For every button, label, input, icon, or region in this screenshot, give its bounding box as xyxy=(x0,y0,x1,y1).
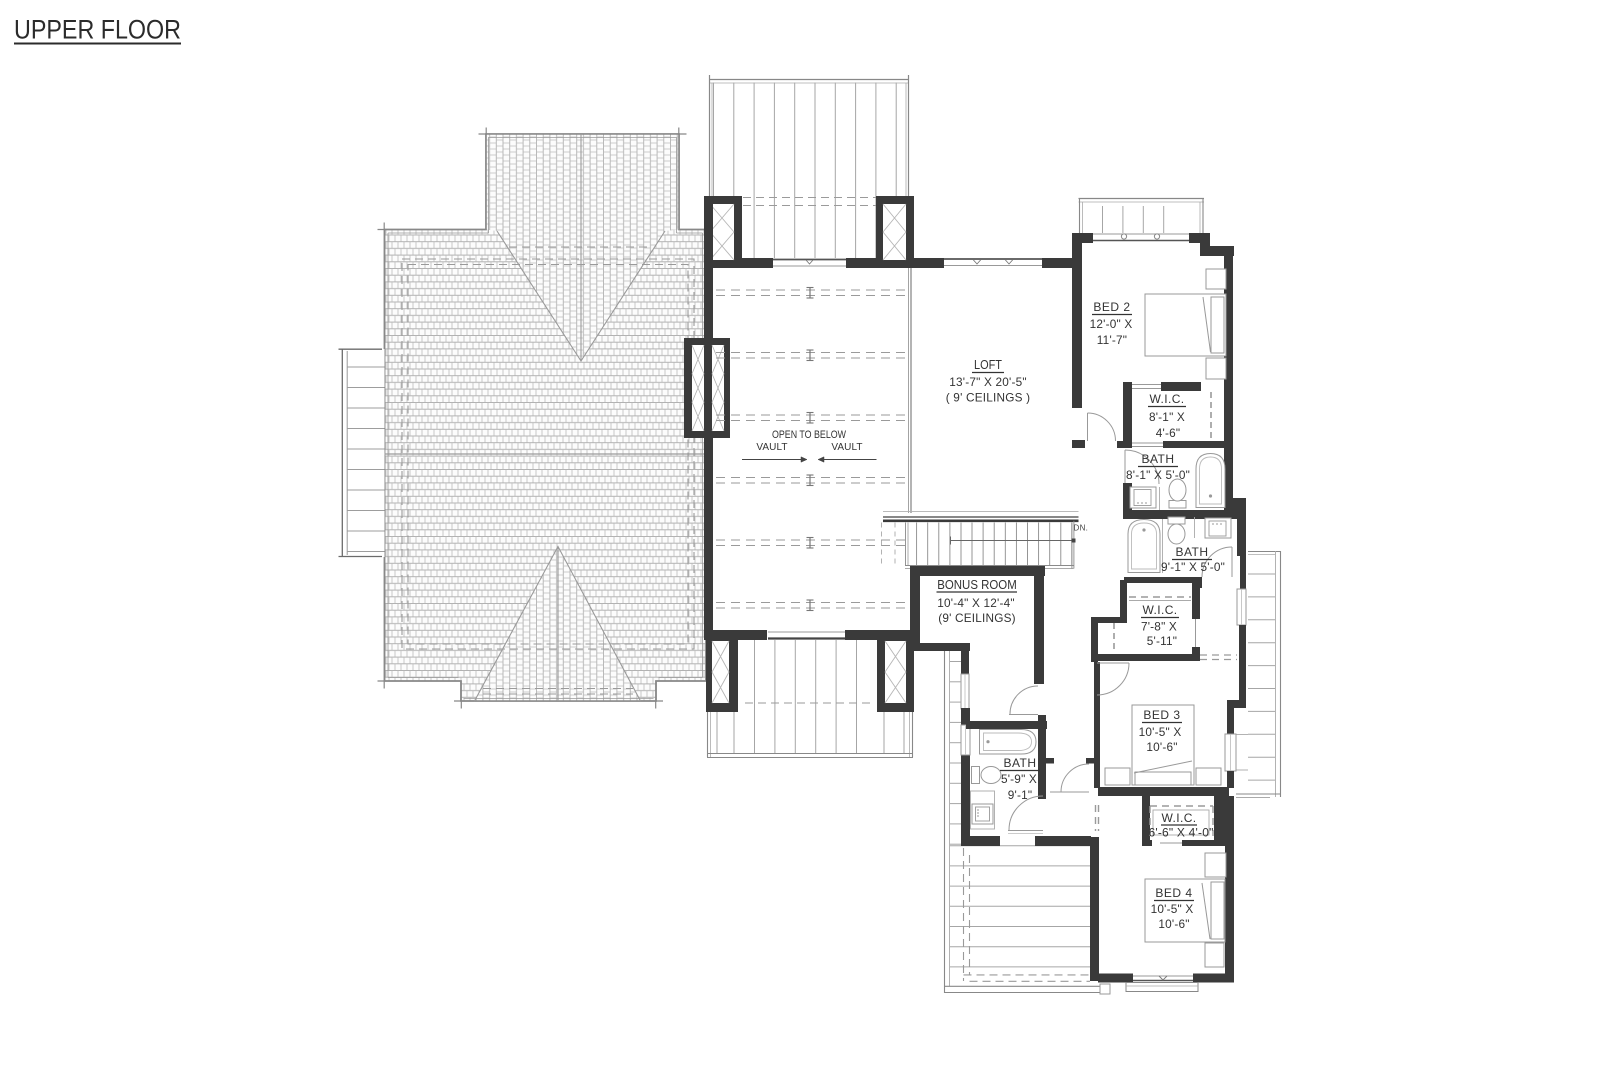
svg-text:9'-1" X 5'-0": 9'-1" X 5'-0" xyxy=(1161,560,1225,574)
svg-text:12'-0" X: 12'-0" X xyxy=(1090,317,1133,331)
svg-text:UPPER FLOOR: UPPER FLOOR xyxy=(14,15,181,45)
svg-text:10'-5" X: 10'-5" X xyxy=(1139,725,1182,739)
svg-text:VAULT: VAULT xyxy=(756,442,787,453)
svg-text:4'-6": 4'-6" xyxy=(1156,426,1181,440)
svg-text:11'-7": 11'-7" xyxy=(1097,333,1127,347)
svg-text:OPEN TO BELOW: OPEN TO BELOW xyxy=(772,429,846,441)
svg-text:10'-4" X 12'-4": 10'-4" X 12'-4" xyxy=(937,596,1015,610)
svg-text:6'-6" X 4'-0": 6'-6" X 4'-0" xyxy=(1148,826,1213,840)
svg-text:BONUS ROOM: BONUS ROOM xyxy=(937,578,1017,592)
svg-text:W.I.C.: W.I.C. xyxy=(1149,392,1184,406)
svg-text:W.I.C.: W.I.C. xyxy=(1161,811,1196,825)
svg-text:BED 3: BED 3 xyxy=(1143,708,1180,722)
svg-text:8'-1" X 5'-0": 8'-1" X 5'-0" xyxy=(1126,468,1190,482)
svg-text:10'-6": 10'-6" xyxy=(1146,740,1177,754)
svg-text:DN.: DN. xyxy=(1074,524,1089,533)
svg-text:7'-8" X: 7'-8" X xyxy=(1141,620,1177,634)
svg-text:(9' CEILINGS): (9' CEILINGS) xyxy=(938,611,1016,625)
svg-text:13'-7" X 20'-5": 13'-7" X 20'-5" xyxy=(949,375,1027,389)
svg-text:BATH: BATH xyxy=(1175,545,1208,559)
svg-text:( 9' CEILINGS ): ( 9' CEILINGS ) xyxy=(946,391,1031,405)
svg-text:8'-1" X: 8'-1" X xyxy=(1149,410,1185,424)
svg-text:VAULT: VAULT xyxy=(831,442,862,453)
svg-text:BATH: BATH xyxy=(1003,756,1036,770)
svg-text:LOFT: LOFT xyxy=(974,357,1002,372)
svg-text:10'-5" X: 10'-5" X xyxy=(1151,902,1194,916)
svg-text:W.I.C.: W.I.C. xyxy=(1142,603,1177,617)
svg-text:BED 2: BED 2 xyxy=(1093,300,1130,314)
svg-text:9'-1": 9'-1" xyxy=(1008,788,1033,802)
svg-text:5'-11": 5'-11" xyxy=(1147,634,1177,648)
svg-text:5'-9" X: 5'-9" X xyxy=(1001,772,1037,786)
svg-text:BED 4: BED 4 xyxy=(1155,886,1192,900)
svg-text:10'-6": 10'-6" xyxy=(1158,917,1189,931)
svg-text:BATH: BATH xyxy=(1141,452,1174,466)
